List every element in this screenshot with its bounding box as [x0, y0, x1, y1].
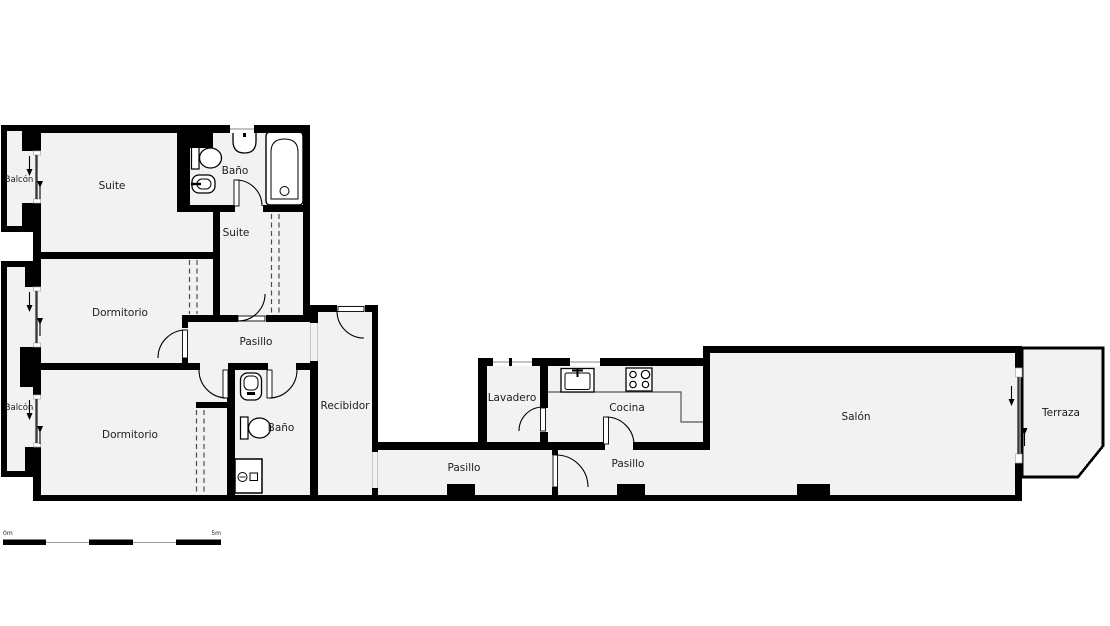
- door-leaf: [553, 455, 558, 487]
- balcony-wall: [1, 261, 7, 477]
- balcony-pier: [25, 267, 38, 287]
- scale-start-label: 0m: [3, 530, 13, 537]
- sliding-door-cap: [1016, 368, 1023, 377]
- label-salon: Salón: [841, 411, 870, 423]
- label-dormitorio-2: Dormitorio: [102, 429, 158, 441]
- sliding-door-cap: [34, 199, 41, 203]
- sliding-door-cap: [34, 343, 41, 347]
- bathtub-icon: [266, 132, 303, 205]
- toilet-icon: [200, 148, 222, 168]
- wall: [535, 358, 567, 366]
- wall: [177, 148, 190, 212]
- wall: [603, 358, 710, 366]
- wall: [540, 432, 548, 442]
- wall: [196, 402, 227, 408]
- wall: [365, 305, 378, 312]
- wall: [552, 450, 558, 455]
- door-leaf: [183, 330, 188, 358]
- label-bano-suite: Baño: [222, 165, 249, 177]
- bidet-icon: [247, 392, 255, 395]
- wall: [310, 305, 337, 312]
- wall: [296, 363, 310, 370]
- wall: [703, 346, 710, 450]
- label-bano-2: Baño: [268, 422, 295, 434]
- toilet-icon: [241, 417, 249, 439]
- wall: [303, 125, 310, 322]
- label-pasillo-bedrooms: Pasillo: [240, 336, 273, 348]
- wall: [372, 488, 378, 495]
- label-pasillo-2: Pasillo: [612, 458, 645, 470]
- wall: [182, 358, 188, 363]
- label-suite-dressing: Suite: [223, 227, 250, 239]
- bidet-icon: [241, 373, 262, 400]
- floor-plan-canvas: Balcón Suite Baño Suite Dormitorio Pasil…: [0, 0, 1110, 626]
- wall: [633, 442, 710, 450]
- wall: [263, 205, 310, 212]
- label-balcon-bottom: Balcón: [5, 402, 34, 413]
- wall: [213, 212, 220, 322]
- sliding-door-cap: [34, 287, 41, 291]
- scale-bar-segment: [3, 540, 46, 546]
- wall-stub: [797, 484, 830, 495]
- floor-plan: Balcón Suite Baño Suite Dormitorio Pasil…: [0, 0, 1110, 626]
- label-dormitorio-1: Dormitorio: [92, 307, 148, 319]
- sliding-door-cap: [34, 395, 41, 399]
- label-recibidor: Recibidor: [321, 400, 371, 412]
- scale-bar-segment: [176, 540, 221, 546]
- window: [490, 358, 493, 366]
- wall: [703, 346, 1022, 353]
- wall: [1015, 463, 1022, 501]
- window: [254, 125, 257, 133]
- balcony-pier: [22, 203, 33, 226]
- window: [532, 358, 535, 366]
- wall: [33, 252, 220, 259]
- balcony-wall: [1, 226, 33, 232]
- window: [567, 358, 570, 366]
- wall: [266, 315, 310, 322]
- balcony-pier: [25, 447, 38, 471]
- label-balcon-top: Balcón: [5, 174, 34, 185]
- wall-stub: [447, 484, 475, 495]
- scale-end-label: 5m: [211, 530, 221, 537]
- wall: [478, 358, 487, 450]
- window: [227, 125, 230, 133]
- label-pasillo-1: Pasillo: [448, 462, 481, 474]
- floor-salon: [703, 346, 1022, 501]
- wall-stub: [617, 484, 645, 495]
- label-terraza: Terraza: [1041, 407, 1080, 419]
- sliding-door-cap: [1016, 454, 1023, 463]
- door-leaf: [223, 370, 228, 398]
- wall: [372, 312, 378, 452]
- door-leaf: [267, 370, 272, 398]
- wall: [257, 125, 310, 133]
- wall: [540, 366, 548, 408]
- label-suite: Suite: [99, 180, 126, 192]
- wall: [310, 361, 318, 495]
- door-leaf: [541, 408, 546, 431]
- wall: [372, 442, 605, 450]
- wall: [177, 205, 235, 212]
- window: [509, 358, 512, 366]
- balcony-pier: [22, 131, 33, 151]
- wall: [552, 487, 558, 495]
- door-leaf: [338, 307, 364, 312]
- balcony-wall: [1, 471, 38, 477]
- wall: [182, 318, 188, 328]
- wall: [33, 495, 1022, 501]
- label-cocina: Cocina: [609, 402, 645, 414]
- door-leaf: [234, 180, 239, 206]
- scale-bar-segment: [89, 540, 133, 546]
- window: [600, 358, 603, 366]
- balcony-pier: [20, 347, 38, 387]
- wall: [478, 358, 490, 366]
- scale-bar: 0m 5m: [3, 530, 221, 545]
- wall: [177, 128, 213, 148]
- door-leaf: [604, 417, 609, 444]
- wall: [33, 125, 41, 151]
- wall: [33, 363, 200, 370]
- wall: [182, 315, 238, 322]
- sliding-door-cap: [34, 151, 41, 155]
- toilet-icon: [192, 147, 200, 169]
- wall: [1015, 346, 1022, 368]
- wall: [228, 363, 268, 370]
- label-lavadero: Lavadero: [488, 392, 537, 404]
